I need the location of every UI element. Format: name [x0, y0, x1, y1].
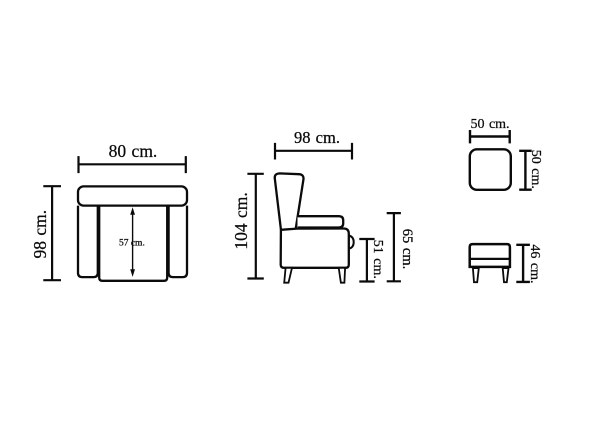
svg-text:46 cm.: 46 cm.	[527, 244, 542, 283]
svg-text:98 cm.: 98 cm.	[30, 210, 50, 259]
svg-text:80 cm.: 80 cm.	[109, 141, 158, 161]
svg-text:104 cm.: 104 cm.	[231, 192, 251, 249]
svg-text:57 cm.: 57 cm.	[119, 239, 145, 249]
svg-text:98 cm.: 98 cm.	[294, 128, 340, 147]
svg-text:65 cm.: 65 cm.	[399, 229, 415, 269]
svg-text:51 cm.: 51 cm.	[370, 240, 385, 279]
svg-text:50 cm.: 50 cm.	[528, 150, 543, 189]
svg-text:50 cm.: 50 cm.	[470, 117, 509, 132]
